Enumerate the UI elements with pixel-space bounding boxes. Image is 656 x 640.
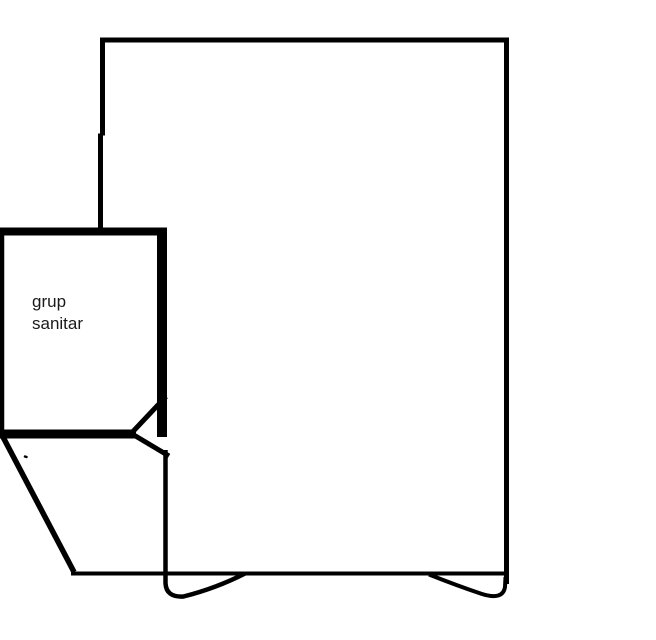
- paint-canvas: grup sanitar: [0, 0, 656, 640]
- bottom-left-diagonal-wall: [3, 437, 74, 572]
- bathroom-label: grup sanitar: [32, 291, 83, 335]
- bathroom-label-line1: grup: [32, 291, 83, 313]
- bathroom-label-line2: sanitar: [32, 313, 83, 335]
- stray-dot: [25, 457, 27, 458]
- floor-plan-drawing: [0, 0, 656, 640]
- bottom-right-door-swing: [429, 575, 506, 597]
